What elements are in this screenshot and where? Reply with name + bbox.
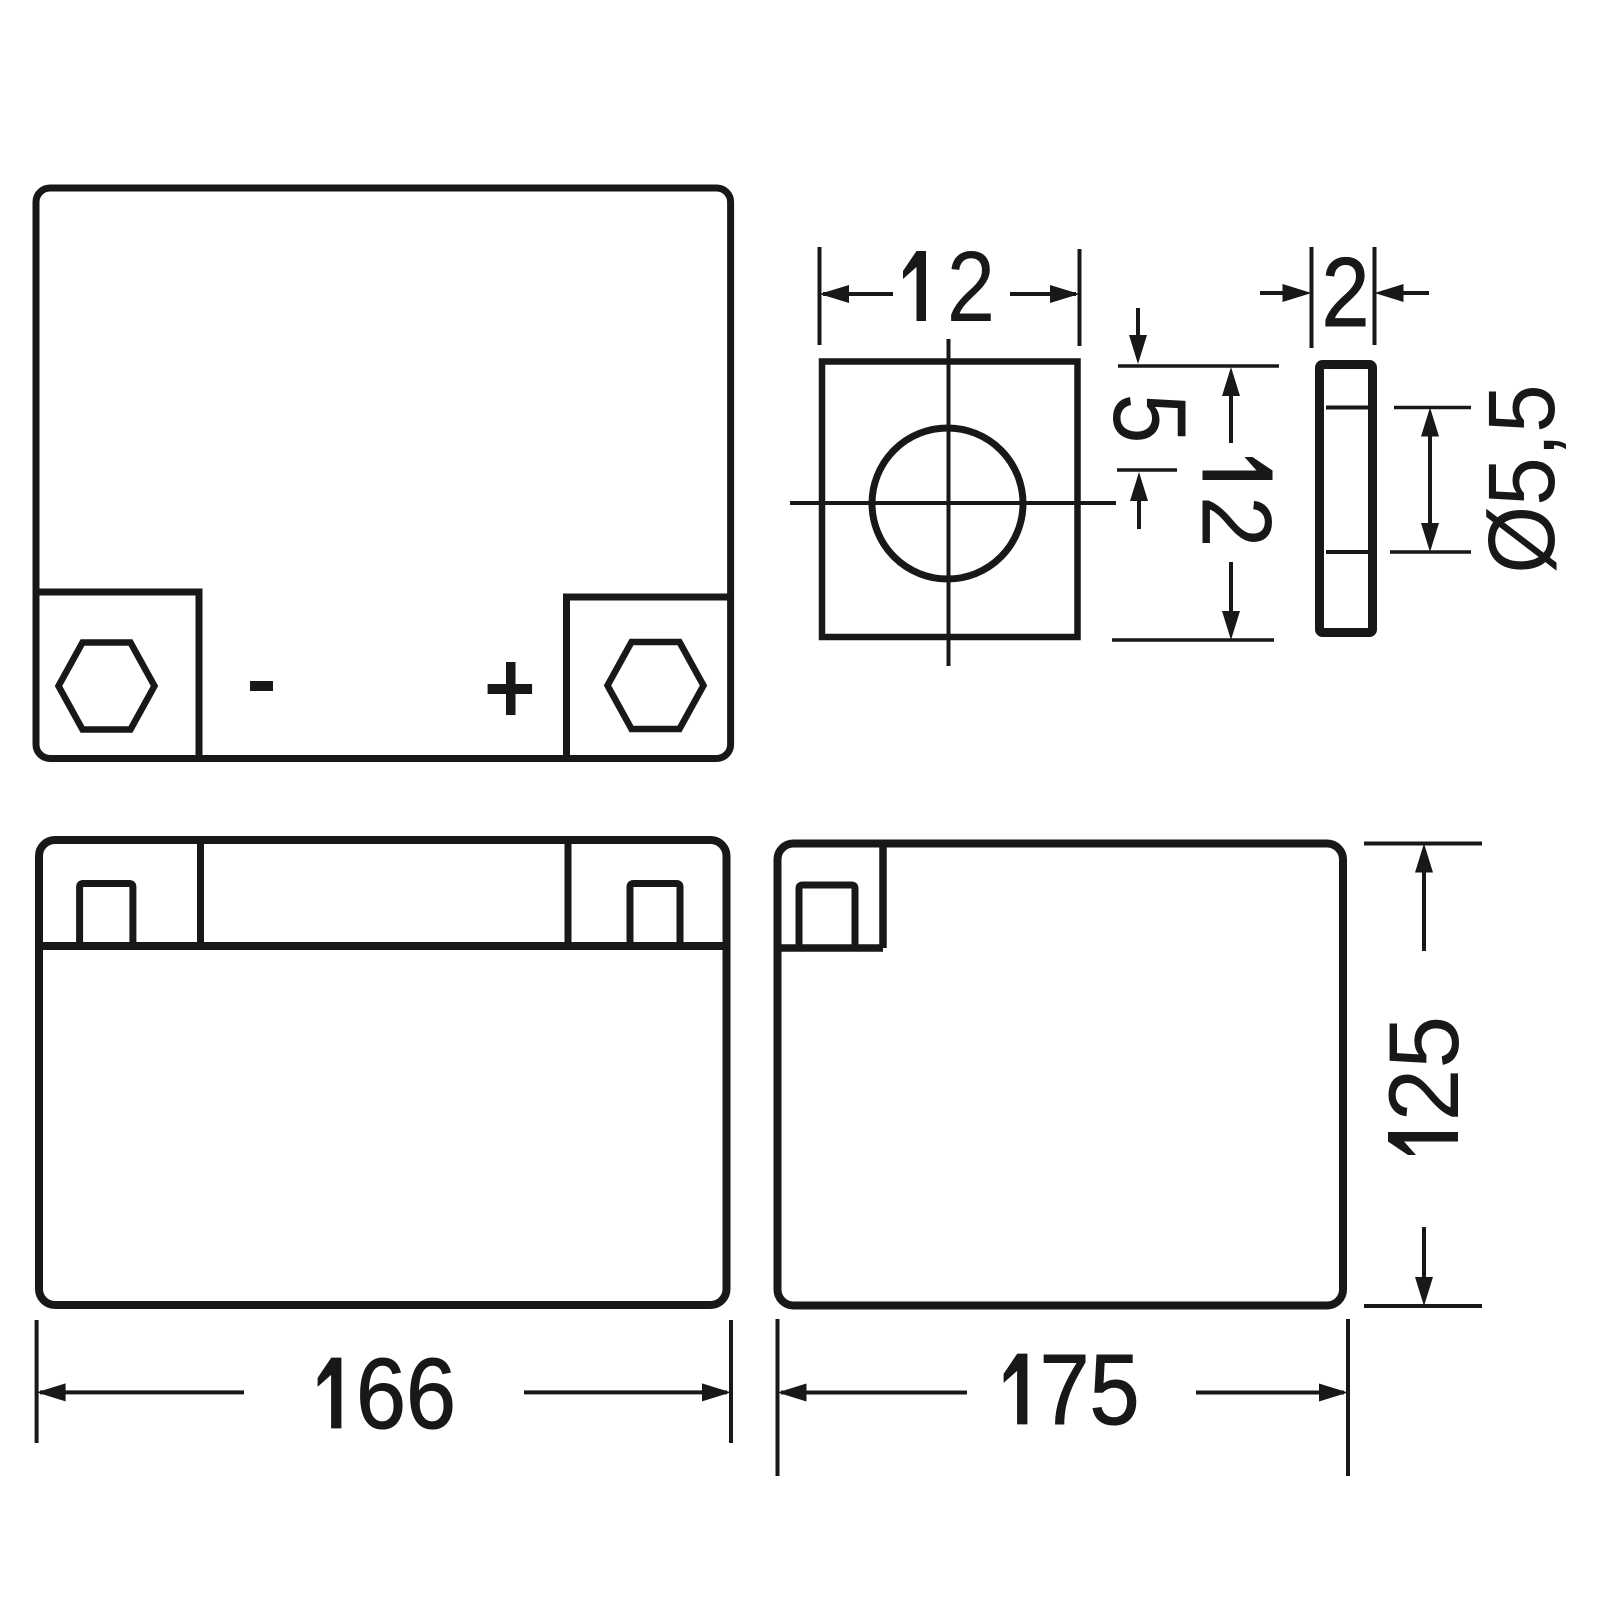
svg-text:5: 5 — [1092, 393, 1208, 443]
svg-text:2: 2 — [1322, 237, 1370, 347]
svg-text:2: 2 — [947, 230, 995, 342]
svg-text:25: 25 — [1368, 1016, 1479, 1122]
svg-text:66: 66 — [356, 1339, 456, 1450]
svg-text:2: 2 — [1181, 496, 1291, 548]
svg-text:75: 75 — [1040, 1335, 1140, 1446]
svg-text:Ø5,5: Ø5,5 — [1469, 384, 1575, 573]
